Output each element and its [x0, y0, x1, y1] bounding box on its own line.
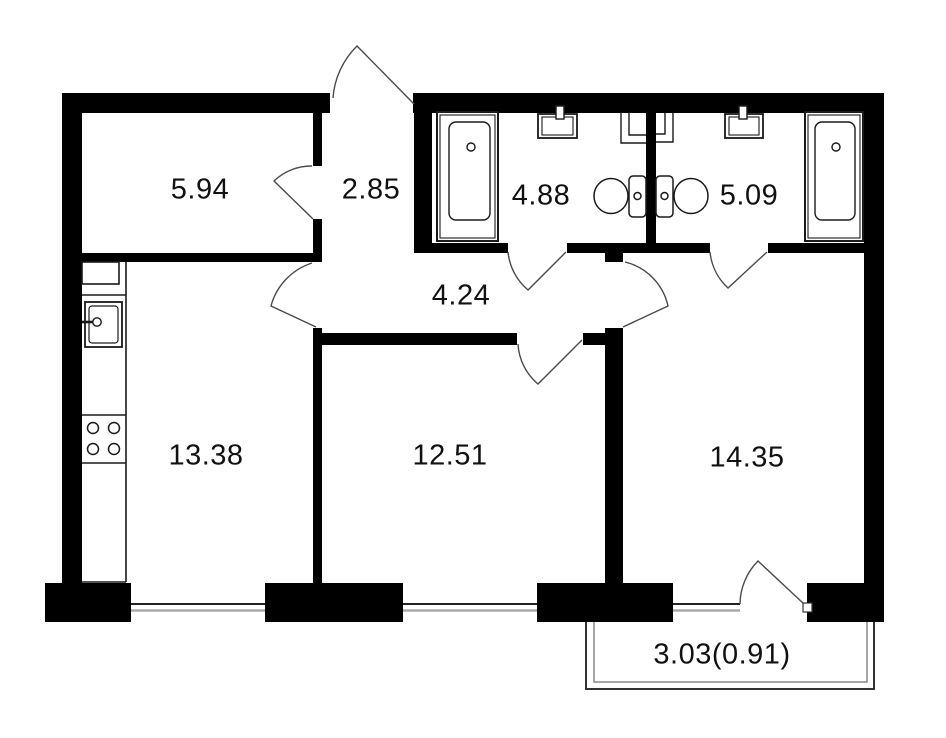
floor-plan-drawing	[0, 0, 946, 738]
toilet-icon	[656, 176, 708, 217]
vent-duct-icon	[656, 113, 673, 142]
stove-icon	[88, 423, 120, 455]
room-area-label: 5.94	[171, 174, 229, 207]
bathtub-icon	[437, 112, 498, 241]
room-area-label: 14.35	[709, 442, 784, 475]
room-area-label: 12.51	[412, 440, 487, 473]
room-area-label: 5.09	[720, 180, 778, 213]
balcony-area-label: 3.03(0.91)	[653, 639, 790, 672]
balcony-door-jamb	[803, 603, 812, 612]
room-area-label: 4.88	[512, 180, 570, 213]
room-area-label: 4.24	[432, 280, 490, 313]
floor-plan: 5.94 2.85 4.88 5.09 4.24 13.38 12.51 14.…	[0, 0, 946, 738]
bathtub-icon	[805, 112, 863, 241]
kitchen-sink-icon	[82, 302, 122, 347]
vent-duct-icon	[621, 113, 646, 143]
room-area-label: 13.38	[168, 440, 243, 473]
toilet-icon	[594, 176, 646, 217]
room-area-label: 2.85	[342, 174, 400, 207]
walls-exterior	[45, 93, 884, 622]
